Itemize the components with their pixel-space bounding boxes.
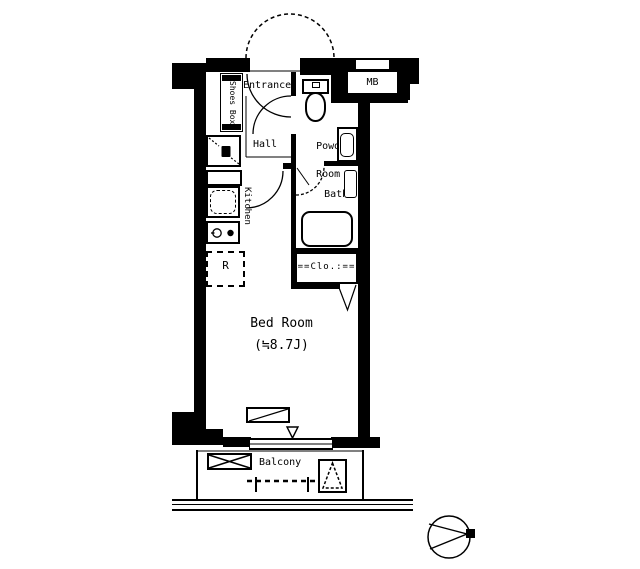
kitchen-sink-basin	[210, 190, 236, 214]
washing-machine-pan	[207, 453, 252, 470]
kitchen-label: Kitchen	[242, 187, 252, 225]
floorplan-canvas: MB Shoes Box Entrance Hall R Kitchen Pow…	[0, 0, 640, 569]
compass-circle	[428, 516, 470, 558]
washbasin-bowl	[340, 133, 354, 157]
wall-segment	[358, 94, 370, 445]
balcony-railing-line	[172, 499, 413, 501]
wall-segment	[205, 429, 223, 445]
compass-icon	[428, 516, 475, 558]
washing-machine-space	[206, 135, 241, 167]
wall-segment	[172, 63, 206, 89]
refrigerator-label: R	[206, 260, 245, 272]
window-center-marker	[287, 427, 298, 438]
meter-box-duct-notch	[356, 60, 389, 69]
shoes-box-label: Shoes Box	[228, 81, 237, 124]
stove	[206, 221, 240, 244]
wall-segment	[206, 58, 250, 72]
wall-segment	[223, 437, 251, 447]
wall-segment	[172, 412, 206, 445]
balcony-partition-tick	[256, 477, 308, 492]
meter-box: MB	[348, 72, 397, 93]
bath-counter	[344, 170, 357, 198]
window-band	[249, 438, 333, 450]
toilet-bowl	[305, 92, 326, 122]
meter-box-wall	[345, 92, 408, 103]
evacuation-hatch	[318, 459, 347, 493]
toilet-flush-knob	[312, 82, 320, 88]
wall-segment	[194, 88, 206, 413]
shoes-box-cap	[222, 124, 241, 130]
powder-room-door-arc	[253, 96, 291, 134]
bedroom-label-line1: Bed Room	[205, 317, 358, 331]
bedroom-label-line2: (≒8.7J)	[205, 339, 358, 353]
bedroom-counter	[246, 407, 290, 423]
interior-wall	[291, 72, 296, 96]
compass-needle	[429, 524, 467, 549]
meter-box-wall	[410, 58, 419, 84]
wall-segment	[331, 437, 380, 448]
balcony-edge	[196, 450, 198, 501]
kitchen-counter	[206, 170, 242, 186]
closet: ==Clo.:==	[295, 252, 358, 284]
balcony-label: Balcony	[259, 457, 301, 468]
hall-label: Hall	[253, 139, 277, 150]
bathtub	[301, 211, 353, 247]
balcony-railing-line	[172, 504, 413, 505]
closet-label: ==Clo.:==	[298, 263, 356, 273]
meter-box-label: MB	[366, 77, 378, 88]
closet-door-swing	[338, 285, 356, 310]
entrance-door-arc	[246, 14, 334, 58]
entrance-label: Entrance	[243, 80, 291, 91]
balcony-edge	[362, 450, 364, 501]
compass-north-square	[466, 529, 475, 538]
interior-wall	[291, 284, 340, 289]
balcony-railing-line	[172, 509, 413, 511]
